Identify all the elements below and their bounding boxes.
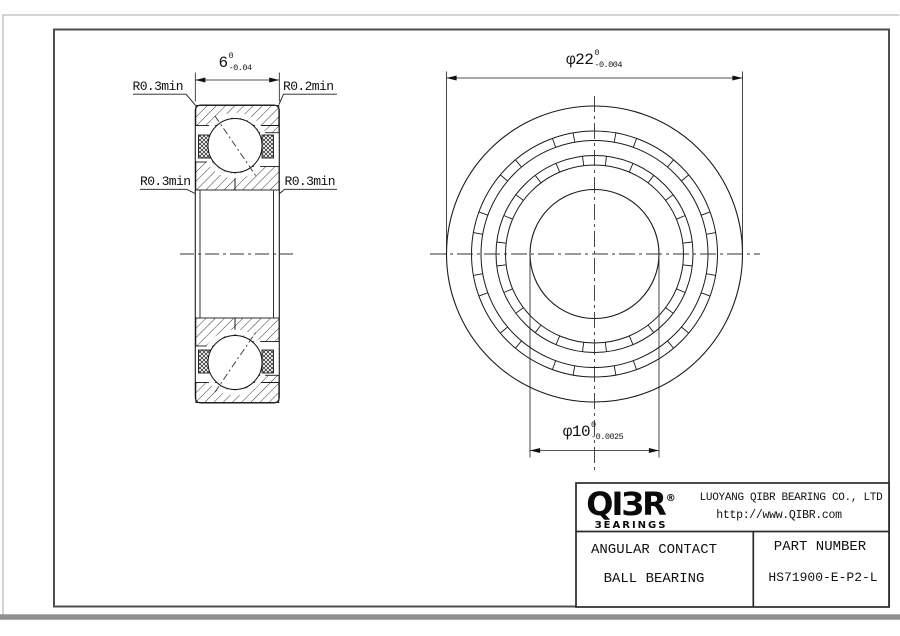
outer-diameter-tolerance: 0 -0.004 [594,49,622,70]
width-dimension-value: 6 [218,55,227,72]
bearing-front-view [430,72,760,473]
logo-subtitle: ЗEARINGS [583,520,679,531]
company-logo: QIЗR® ЗEARINGS [583,484,679,531]
width-dimension-tolerance: 0 -0.04 [229,52,252,73]
drawing-sheet: 6 0 -0.04 R0.3min R0.2min R0.3min R0.3mi… [0,0,900,636]
company-name: LUOYANG QIBR BEARING CO., LTD [700,492,883,504]
radius-label-mid-right: R0.3min [285,175,335,188]
radius-label-top-right: R0.2min [283,80,333,93]
registered-trademark-icon: ® [666,493,676,504]
bore-diameter-value: φ10 [563,424,590,441]
part-number-label: PART NUMBER [774,540,866,555]
outer-diameter-dimension-text: φ22 0 -0.004 [566,52,622,70]
bearing-section-view [133,73,337,404]
company-website: http://www.QIBR.com [716,510,841,522]
width-dimension-text: 6 0 -0.04 [218,55,251,73]
outer-diameter-value: φ22 [566,52,593,69]
product-type-line1: ANGULAR CONTACT [591,543,717,558]
radius-label-top-left: R0.3min [133,80,183,93]
bore-diameter-dimension-text: φ10 0 -0.0025 [563,424,624,442]
radius-label-mid-left: R0.3min [140,175,190,188]
logo-wordmark: QIЗR® [583,484,679,519]
part-number-value: HS71900-E-P2-L [768,571,877,585]
drawing-linework [0,0,900,636]
bore-diameter-tolerance: 0 -0.0025 [591,421,623,442]
product-type-line2: BALL BEARING [604,572,705,587]
width-dimension-lines [195,73,279,102]
bottom-edge-band [0,614,900,619]
